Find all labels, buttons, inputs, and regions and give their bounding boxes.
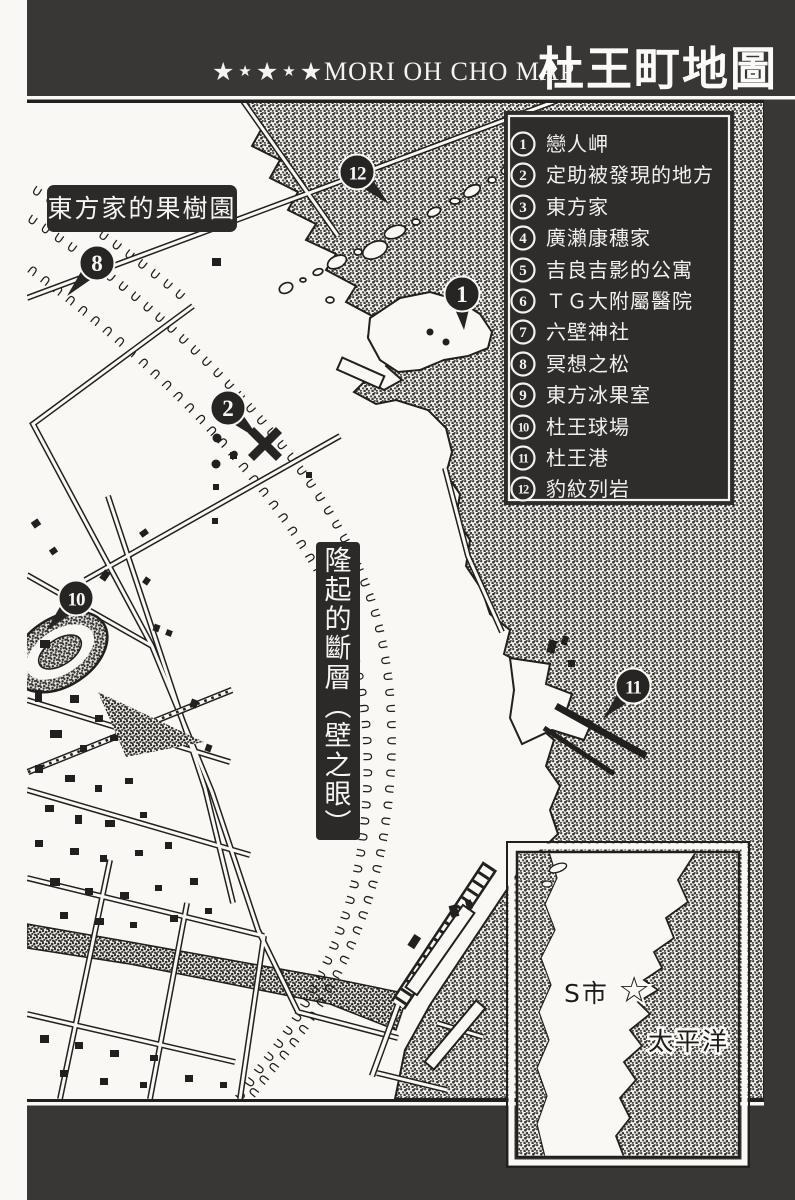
svg-text:2: 2 <box>519 168 527 184</box>
svg-text:東方家的果樹園: 東方家的果樹園 <box>47 194 236 223</box>
svg-text:杜王球場: 杜王球場 <box>546 415 630 439</box>
svg-text:12: 12 <box>349 164 367 185</box>
svg-text:8: 8 <box>519 357 527 373</box>
svg-text:冥想之松: 冥想之松 <box>546 352 630 376</box>
svg-text:定助被發現的地方: 定助被發現的地方 <box>546 163 714 187</box>
svg-text:1: 1 <box>456 282 468 307</box>
svg-text:豹紋列岩: 豹紋列岩 <box>546 477 630 501</box>
manga-map-page: ★★★★★ MORI OH CHO MAP 杜王町地圖 ∪∪∪∪∪∪∪∪∪∪∪∪… <box>0 0 795 1200</box>
svg-text:6: 6 <box>519 294 527 310</box>
svg-text:吉良吉影的公寓: 吉良吉影的公寓 <box>546 258 693 282</box>
svg-text:3: 3 <box>519 200 527 216</box>
orchard-label: 東方家的果樹園 <box>47 185 237 232</box>
svg-text:11: 11 <box>625 678 641 699</box>
legend-item-8: 8冥想之松 <box>512 352 631 376</box>
svg-text:10: 10 <box>518 421 529 435</box>
svg-text:東方家: 東方家 <box>546 195 609 219</box>
svg-text:1: 1 <box>519 137 527 153</box>
legend-item-12: 12豹紋列岩 <box>512 477 631 501</box>
legend-item-3: 3東方家 <box>512 195 610 219</box>
inset-ocean-label: 太平洋 <box>648 1027 729 1056</box>
legend-item-1: 1戀人岬 <box>512 132 610 156</box>
header-rule <box>27 96 795 100</box>
legend-item-11: 11杜王港 <box>512 446 610 470</box>
svg-text:東方冰果室: 東方冰果室 <box>546 383 651 407</box>
fault-label: 隆起的斷層︵壁之眼︶ <box>316 542 360 840</box>
svg-text:杜王港: 杜王港 <box>546 446 609 470</box>
svg-text:12: 12 <box>518 483 529 497</box>
svg-text:六壁神社: 六壁神社 <box>546 320 630 344</box>
svg-text:10: 10 <box>68 590 86 611</box>
svg-text:5: 5 <box>519 263 527 279</box>
legend: 1戀人岬 2定助被發現的地方 3東方家 4廣瀨康穗家 5吉良吉影的公寓 6ＴＧ大… <box>504 111 734 505</box>
svg-text:9: 9 <box>519 388 527 404</box>
svg-text:廣瀨康穗家: 廣瀨康穗家 <box>546 226 651 250</box>
svg-text:4: 4 <box>519 231 527 247</box>
svg-text:2: 2 <box>222 396 234 421</box>
header-stars-icon: ★★★★★ <box>212 57 326 86</box>
fault-label-text: 隆起的斷層︵壁之眼︶ <box>325 546 352 840</box>
inset-map: S市 ☆ 太平洋 <box>507 842 749 1167</box>
svg-text:ＴＧ大附屬醫院: ＴＧ大附屬醫院 <box>546 289 693 313</box>
page-title: 杜王町地圖 <box>538 44 778 95</box>
svg-text:戀人岬: 戀人岬 <box>546 132 609 156</box>
svg-text:11: 11 <box>518 452 529 466</box>
svg-text:7: 7 <box>519 325 527 341</box>
legend-item-7: 7六壁神社 <box>512 320 631 344</box>
legend-item-10: 10杜王球場 <box>512 415 631 439</box>
svg-text:8: 8 <box>91 251 103 276</box>
map-top-border <box>27 100 764 104</box>
inset-city-label: S市 <box>564 979 609 1008</box>
city-star-icon: ☆ <box>618 970 650 1011</box>
